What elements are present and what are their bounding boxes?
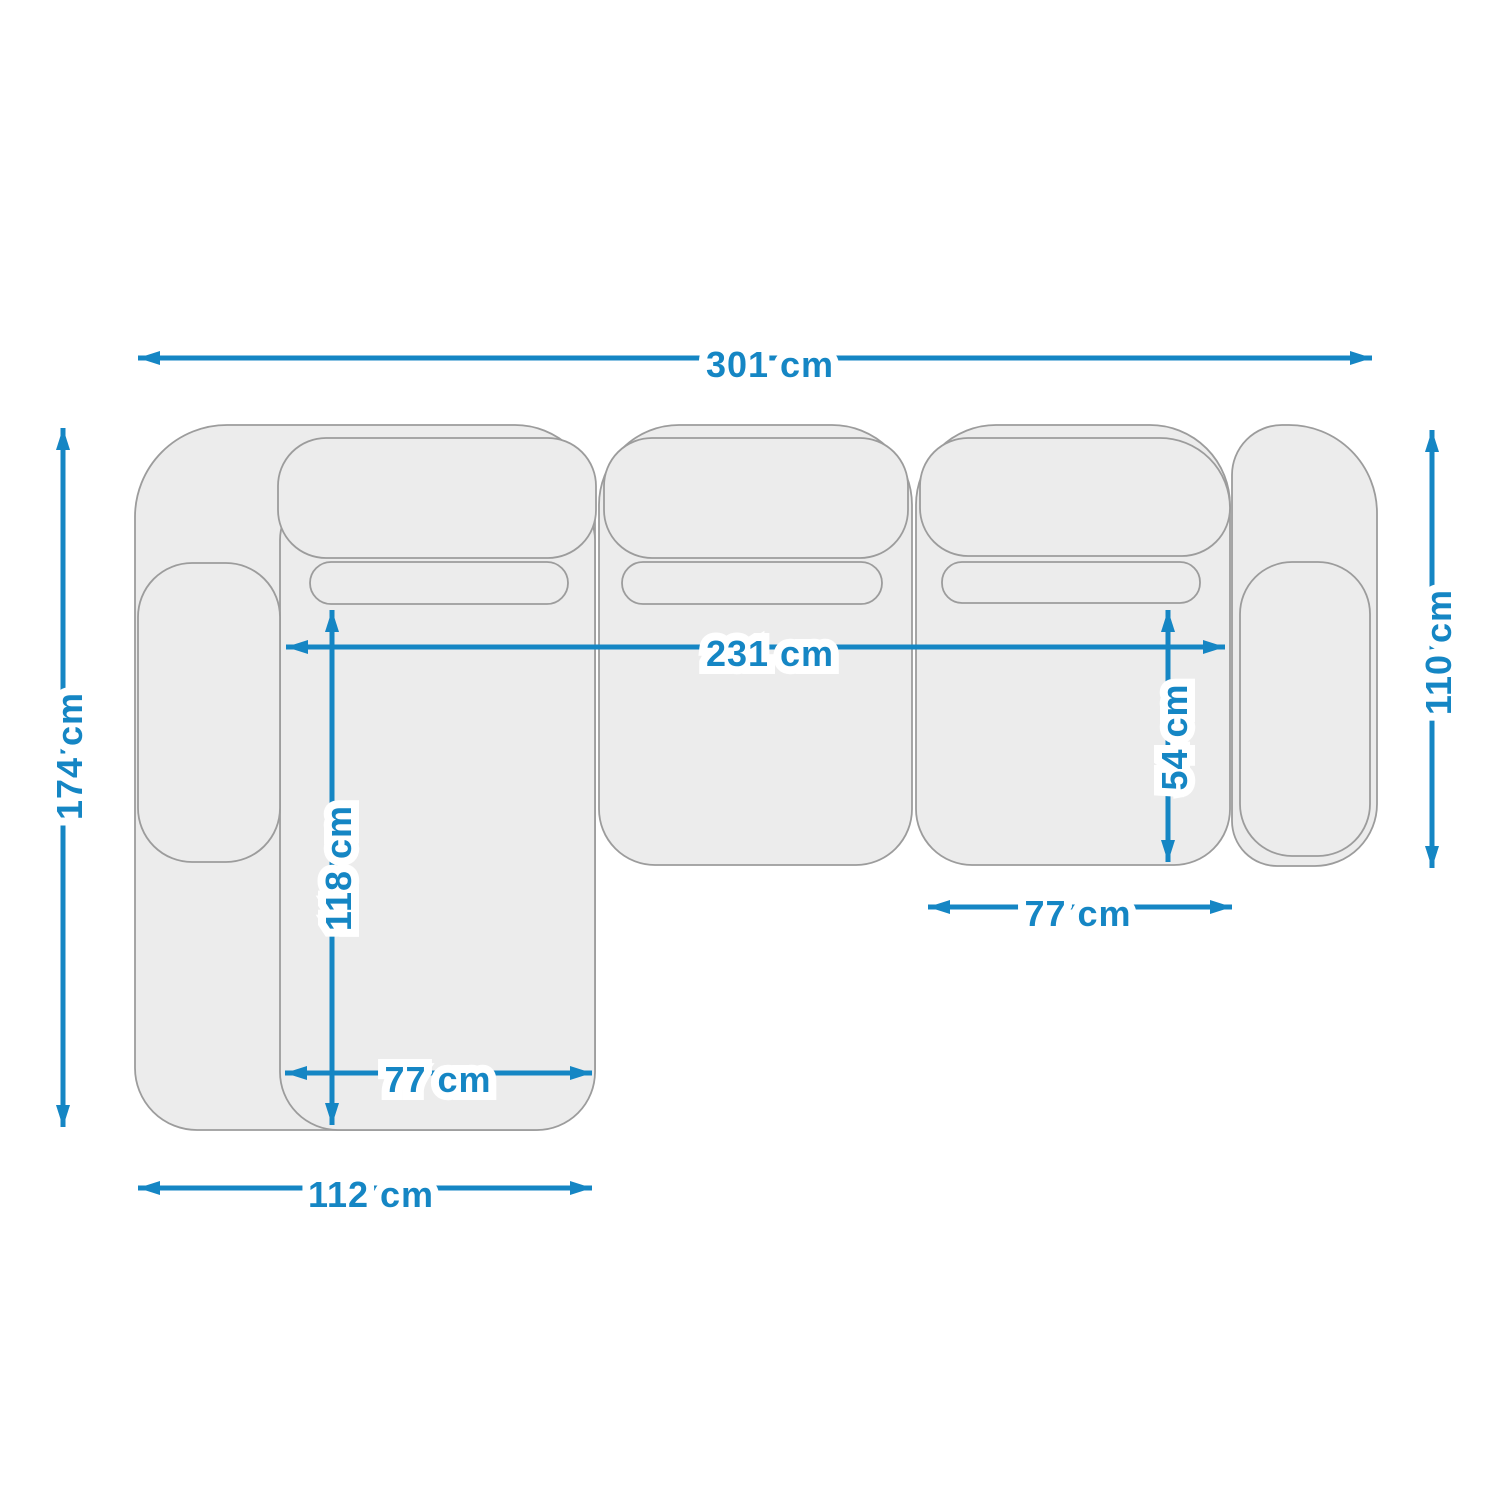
dimension-label-right-seat-width: 77 cm bbox=[1024, 893, 1131, 934]
left-armrest-pad bbox=[138, 563, 280, 862]
dimension-label-total-width: 301 cm bbox=[706, 344, 834, 385]
dimension-label-total-depth: 174 cm bbox=[49, 692, 90, 820]
headrest-cushion-right bbox=[920, 438, 1230, 556]
dimension-chaise-total-width: 112 cm bbox=[138, 1174, 592, 1215]
dimension-label-chaise-seat-width: 77 cm bbox=[384, 1059, 491, 1100]
dimension-label-right-side-depth: 110 cm bbox=[1418, 589, 1459, 715]
dimension-total-depth: 174 cm bbox=[49, 428, 90, 1127]
dimension-label-inner-width: 231 cm bbox=[706, 633, 834, 674]
dimension-label-seat-depth: 54 cm bbox=[1154, 683, 1195, 790]
sofa-dimension-diagram: 301 cm 174 cm 110 cm 231 cm 118 cm 54 cm… bbox=[0, 0, 1500, 1500]
dimension-right-side-depth: 110 cm bbox=[1418, 430, 1459, 868]
headrest-cushion-left bbox=[278, 438, 596, 558]
lumbar-cushion-middle bbox=[622, 562, 882, 604]
sofa-top-view-svg: 301 cm 174 cm 110 cm 231 cm 118 cm 54 cm… bbox=[0, 0, 1500, 1500]
right-armrest-pad bbox=[1240, 562, 1370, 856]
lumbar-cushion-left bbox=[310, 562, 568, 604]
dimension-label-chaise-total-width: 112 cm bbox=[308, 1174, 434, 1215]
headrest-cushion-middle bbox=[604, 438, 908, 558]
dimension-label-chaise-inner-length: 118 cm bbox=[318, 805, 359, 931]
dimension-total-width: 301 cm bbox=[138, 344, 1372, 385]
lumbar-cushion-right bbox=[942, 562, 1200, 603]
dimension-right-seat-width: 77 cm bbox=[928, 893, 1232, 934]
